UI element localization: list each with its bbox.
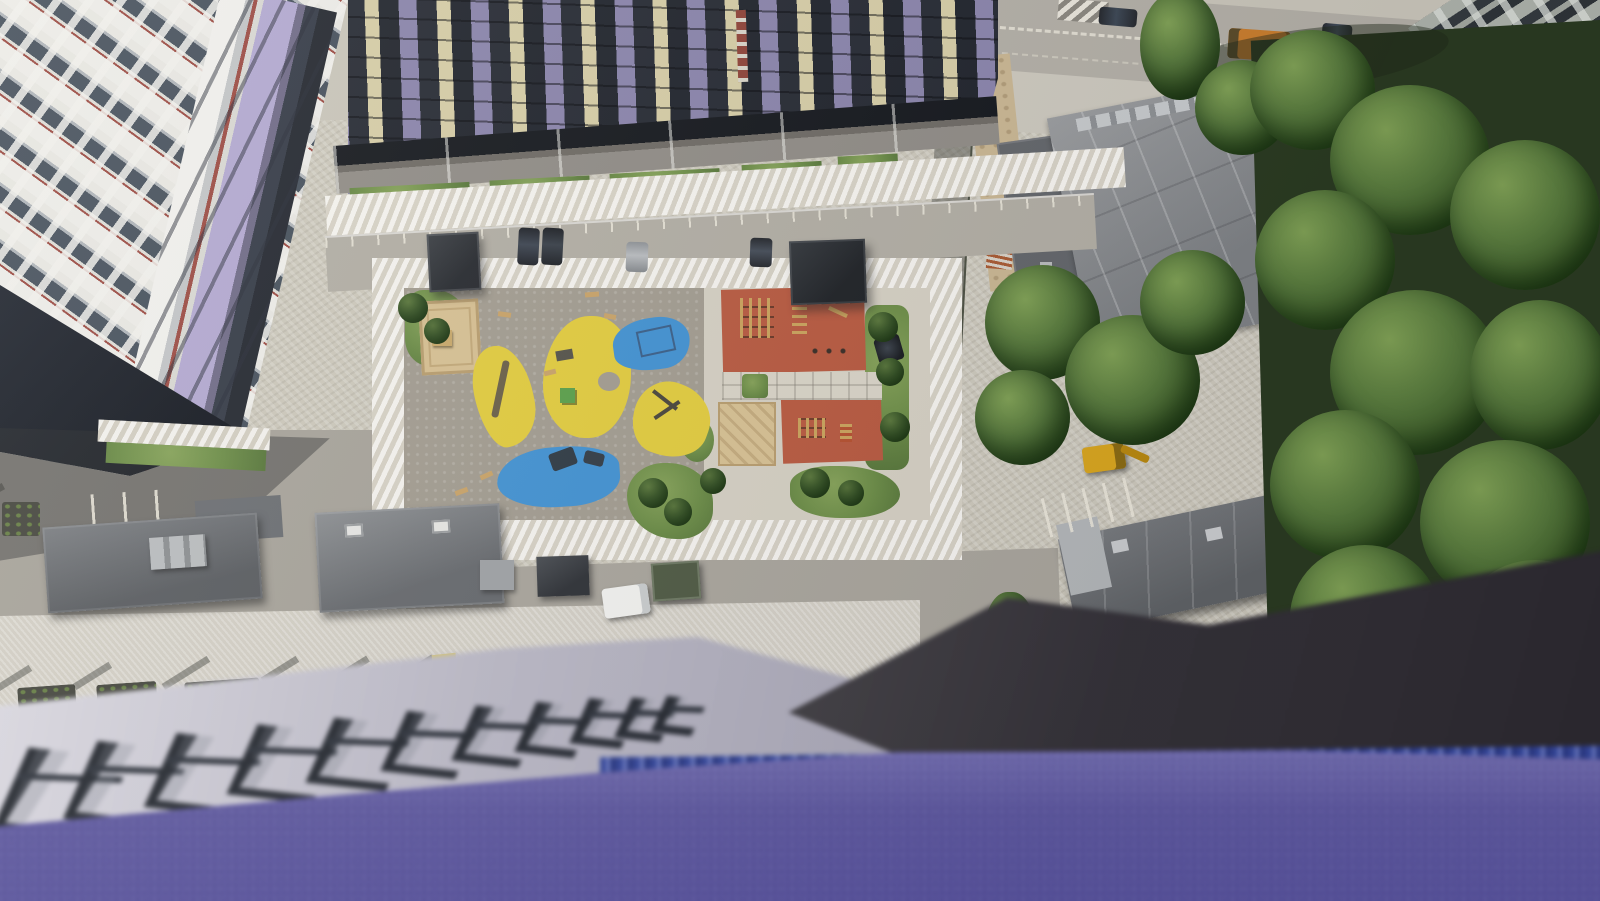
aerial-courtyard-photo [0,0,1600,901]
foreground-blur-group [0,0,1600,901]
shadowed-wall-edge [780,530,1600,780]
